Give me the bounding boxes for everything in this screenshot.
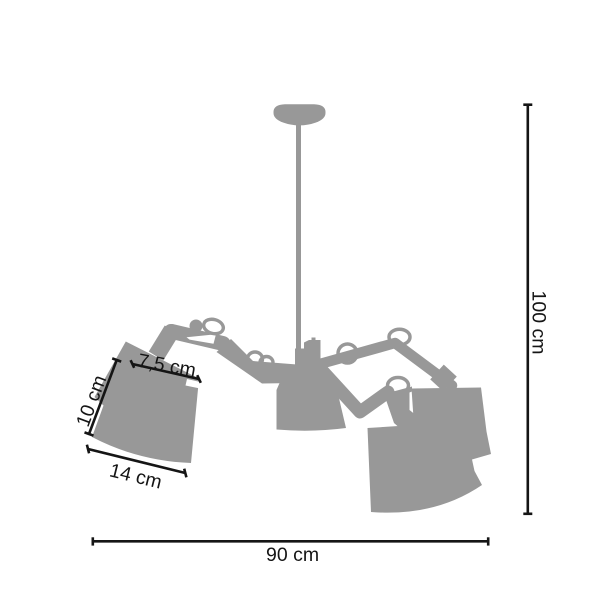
svg-text:100 cm: 100 cm	[528, 291, 550, 355]
svg-text:90 cm: 90 cm	[266, 544, 319, 566]
